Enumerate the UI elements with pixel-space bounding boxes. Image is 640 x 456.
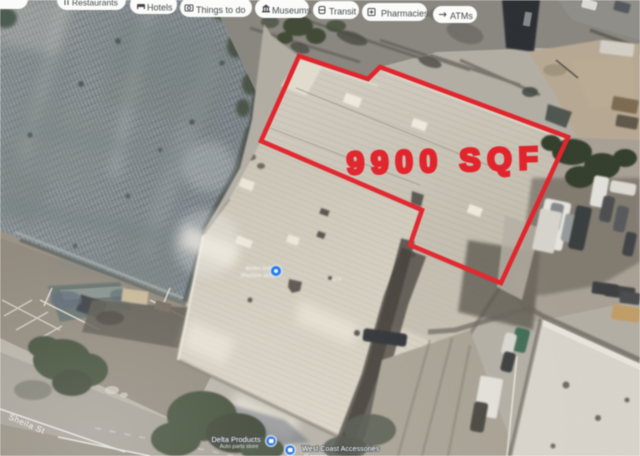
svg-text:Restaurants: Restaurants [72,0,118,8]
svg-text:Pharmacies: Pharmacies [381,9,429,19]
svg-text:ATMs: ATMs [450,11,473,21]
svg-text:Things to do: Things to do [196,5,246,15]
svg-text:Hotels: Hotels [147,3,173,13]
svg-text:Museums: Museums [272,6,312,16]
svg-text:Transit: Transit [329,7,357,17]
